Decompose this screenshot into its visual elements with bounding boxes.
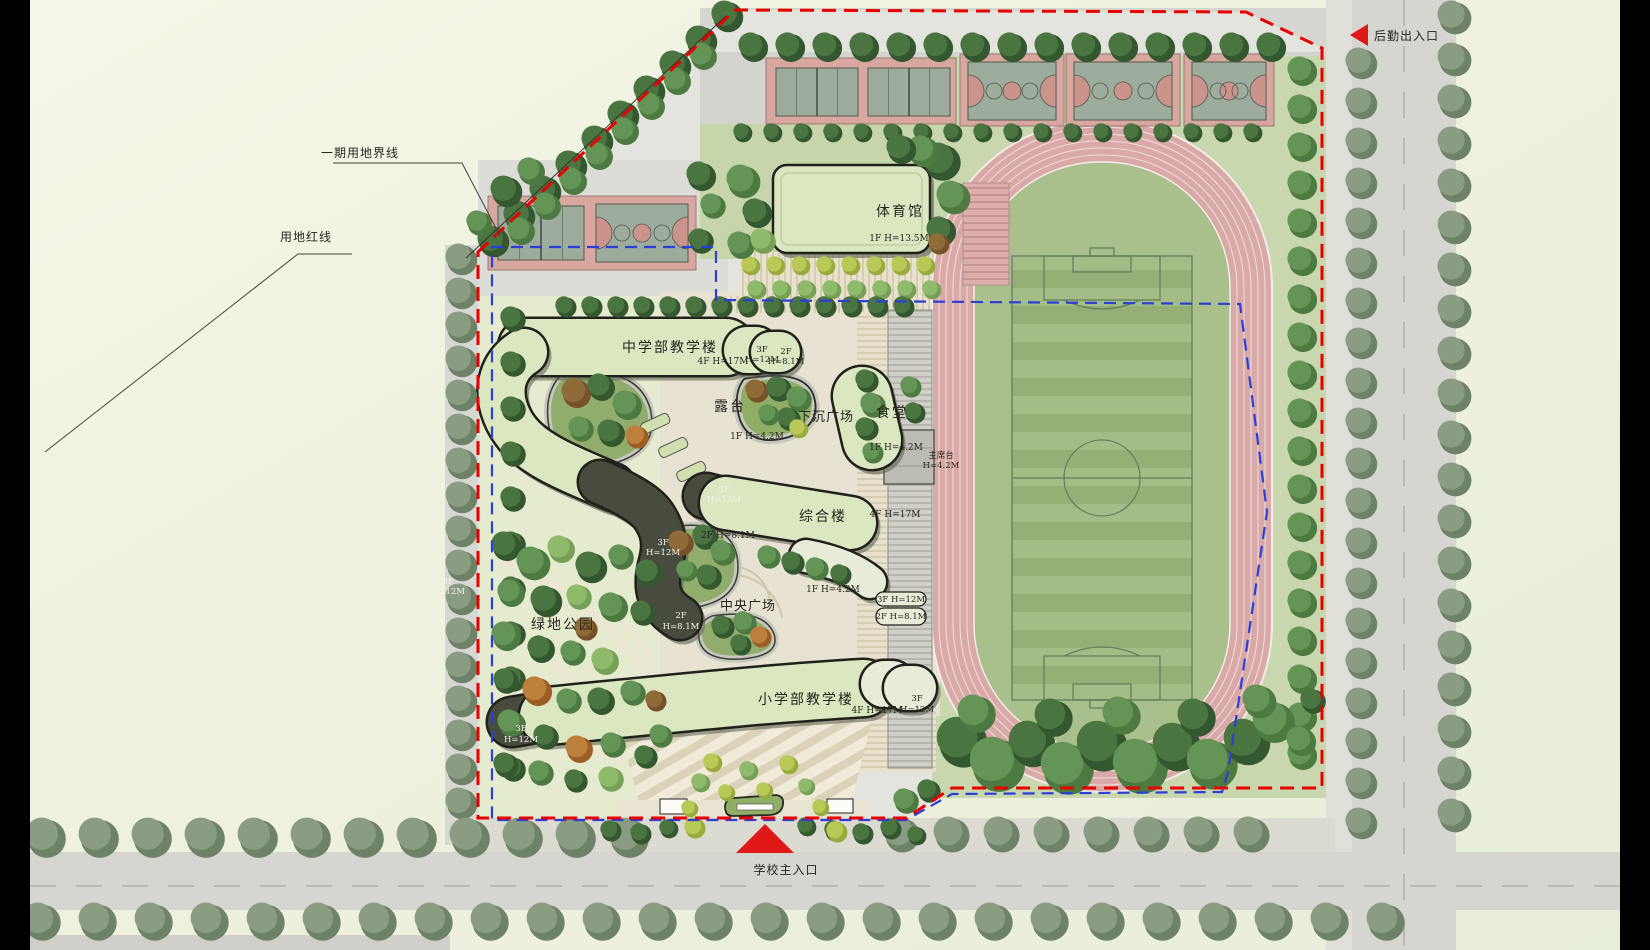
west-wing-step2-floors: 2F — [675, 611, 686, 621]
terrace-spec: 1F H=4.2M — [730, 432, 784, 442]
complex-tab2-label: 2F H=8.1M — [876, 612, 927, 622]
ms-step3-floors: 3F — [756, 345, 767, 355]
screenshot-stage: 一期用地界线 用地红线 后勤出入口 学校主入口 体育馆 1F H=13.5M 中… — [0, 0, 1650, 950]
main-entrance-label: 学校主入口 — [753, 862, 818, 877]
primary-school-spec: 4F H=17M — [852, 706, 903, 716]
ms-step2-floors: 2F — [780, 347, 791, 357]
complex-step3-floors: 3F — [718, 485, 729, 495]
complex-2f-spec: 2F H=8.1M — [701, 531, 755, 541]
canteen-spec: 1F H=4.2M — [869, 443, 923, 453]
primary-school-label: 小学部教学楼 — [758, 692, 854, 708]
gym-label: 体育馆 — [876, 204, 924, 220]
rostrum-label: 主席台 — [928, 450, 954, 461]
bottom-road — [30, 852, 1622, 910]
gatehouse — [827, 799, 853, 813]
red-line-label: 用地红线 — [280, 229, 332, 244]
west-far-height: H=12M — [431, 587, 465, 597]
green-park-label: 绿地公园 — [531, 617, 595, 633]
ps-lstep-height: H=12M — [504, 735, 538, 745]
phase1-boundary-label: 一期用地界线 — [321, 146, 399, 160]
central-plaza-label: 中央广场 — [720, 599, 776, 614]
right-black-bar — [1620, 0, 1650, 950]
complex-label: 综合楼 — [799, 509, 847, 525]
middle-school-spec: 4F H=17M — [698, 357, 749, 367]
west-wing-step2-height: H=8.1M — [663, 622, 700, 632]
complex-step3-height: H=12M — [707, 495, 741, 505]
site-plan: 一期用地界线 用地红线 后勤出入口 学校主入口 体育馆 1F H=13.5M 中… — [0, 0, 1650, 950]
complex-spec: 4F H=17M — [870, 510, 921, 520]
west-far-floors: 3F — [442, 577, 453, 587]
ms-step2-height: H=8.1M — [768, 357, 805, 367]
gym-spec: 1F H=13.5M — [869, 234, 928, 244]
middle-school-label: 中学部教学楼 — [622, 340, 718, 356]
complex-tab3-label: 3F H=12M — [877, 595, 925, 605]
left-black-bar — [0, 0, 30, 950]
west-wing-step3-height: H=12M — [646, 548, 680, 558]
sunken-plaza-label: 下沉广场 — [798, 410, 854, 425]
terrace-label: 露台 — [714, 399, 746, 415]
service-entrance-label: 后勤出入口 — [1374, 29, 1439, 43]
rostrum-spec: H=4.2M — [923, 461, 960, 471]
ps-rstep-height: H=12M — [900, 705, 934, 715]
ps-lstep-floors: 3F — [515, 724, 526, 734]
canteen-label: 食堂 — [876, 404, 908, 421]
ps-rstep-floors: 3F — [911, 694, 922, 704]
complex-1f-spec: 1F H=4.2M — [806, 585, 860, 595]
west-wing-step3-floors: 3F — [657, 538, 668, 548]
entry-sign — [737, 804, 773, 810]
